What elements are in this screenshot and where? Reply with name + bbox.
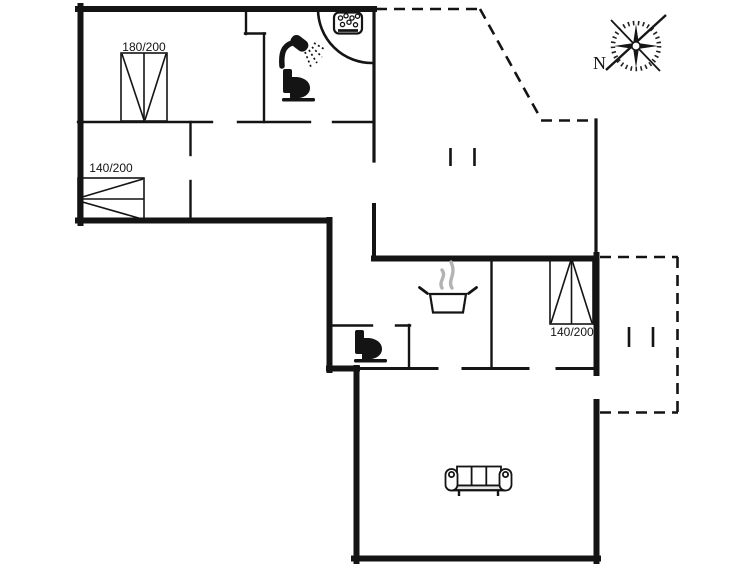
- bed-size-label-140x200-left: 140/200: [84, 161, 138, 175]
- cooking-pot-icon: [420, 262, 477, 313]
- bed-140x200-right: [550, 259, 593, 324]
- sofa-icon: [446, 467, 512, 497]
- wc-toilet-icon: [354, 330, 387, 363]
- exterior-walls: [78, 6, 598, 561]
- steam-icon: [441, 270, 444, 288]
- compass-rose-icon: [606, 15, 666, 71]
- north-label: N: [593, 53, 606, 74]
- steam-icon: [451, 262, 453, 288]
- interior-walls: [78, 8, 595, 369]
- bed-180x200: [121, 53, 167, 121]
- bed-size-label-140x200-right: 140/200: [545, 325, 599, 339]
- bed-140x200-left: [78, 178, 144, 220]
- floor-plan: 180/200 140/200 140/200 N: [0, 0, 755, 566]
- floor-plan-canvas: [0, 0, 755, 566]
- bed-size-label-180x200: 180/200: [117, 40, 171, 54]
- shower-icon: [282, 33, 324, 67]
- secondary-walls: [374, 8, 596, 258]
- toilet-icon: [282, 69, 315, 102]
- terrace-steps-icon: [629, 327, 653, 347]
- terrace-outline: [376, 9, 678, 413]
- entrance-steps-icon: [451, 148, 475, 166]
- whirlpool-icon: [334, 13, 362, 34]
